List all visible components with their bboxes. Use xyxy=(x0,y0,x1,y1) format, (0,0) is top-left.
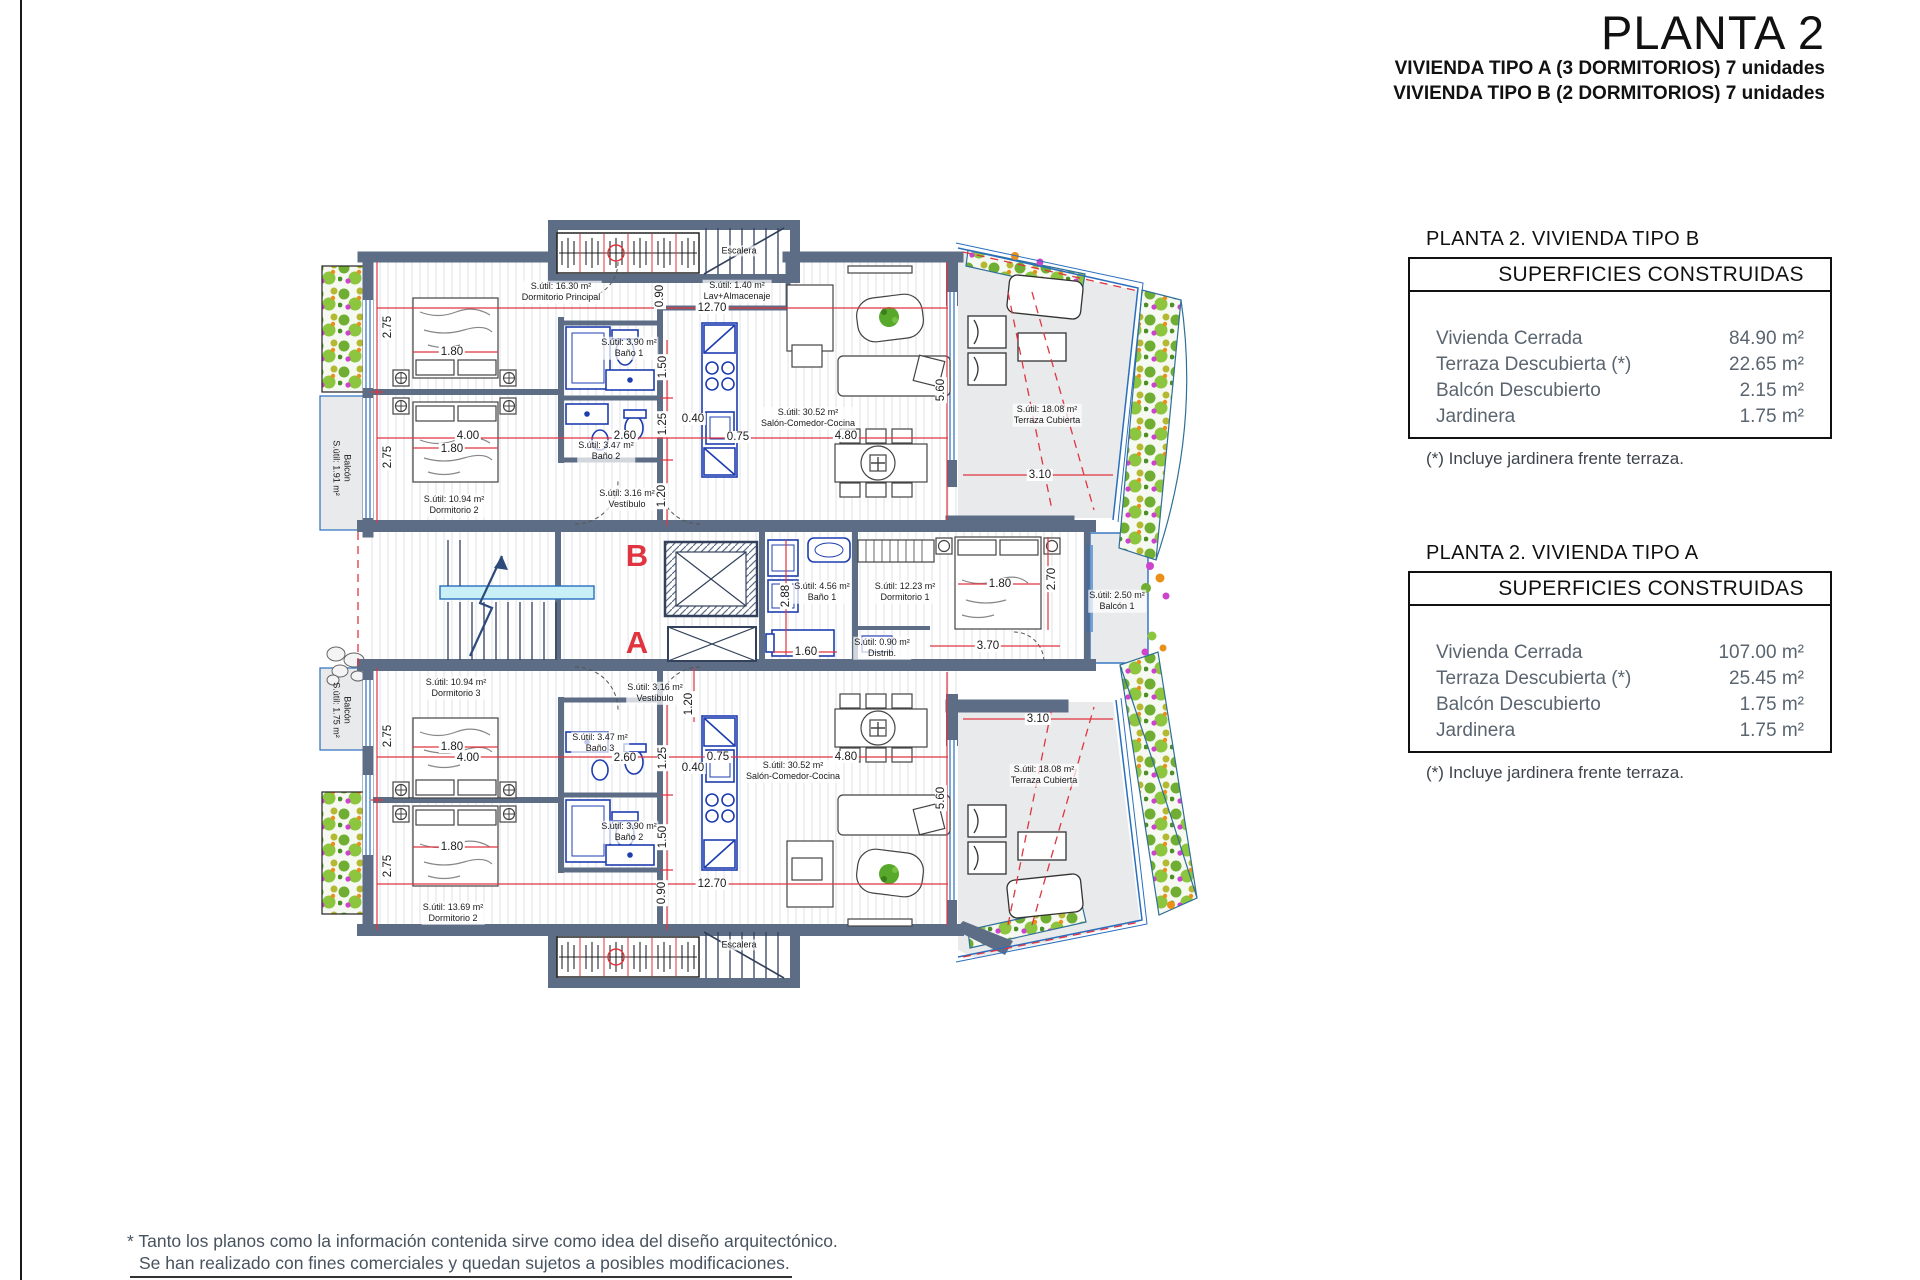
row-value: 25.45 m² xyxy=(1729,666,1804,692)
row-value: 22.65 m² xyxy=(1729,352,1804,378)
row-label: Terraza Descubierta (*) xyxy=(1436,352,1631,378)
sheet-border-left xyxy=(20,0,22,1280)
row-label: Jardinera xyxy=(1436,404,1515,430)
panel-a-heading: PLANTA 2. VIVIENDA TIPO A xyxy=(1426,542,1832,565)
table-row: Balcón Descubierto 2.15 m² xyxy=(1436,378,1804,404)
kitchen-a xyxy=(702,716,737,870)
disclaimer-line1: * Tanto los planos como la información c… xyxy=(127,1230,838,1252)
table-row: Terraza Descubierta (*) 22.65 m² xyxy=(1436,352,1804,378)
panel-a-table: SUPERFICIES CONSTRUIDAS Vivienda Cerrada… xyxy=(1408,571,1832,753)
disclaimer-line2: Se han realizado con fines comerciales y… xyxy=(127,1252,838,1274)
page-title: PLANTA 2 xyxy=(1393,8,1825,57)
row-value: 84.90 m² xyxy=(1729,326,1804,352)
panel-a-table-title: SUPERFICIES CONSTRUIDAS xyxy=(1410,573,1830,606)
row-label: Vivienda Cerrada xyxy=(1436,640,1582,666)
panel-tipo-a: PLANTA 2. VIVIENDA TIPO A SUPERFICIES CO… xyxy=(1408,542,1832,783)
row-value: 1.75 m² xyxy=(1740,718,1804,744)
panel-b-table: SUPERFICIES CONSTRUIDAS Vivienda Cerrada… xyxy=(1408,257,1832,439)
subtitle-tipo-a: VIVIENDA TIPO A (3 DORMITORIOS) 7 unidad… xyxy=(1393,57,1825,82)
table-row: Balcón Descubierto 1.75 m² xyxy=(1436,692,1804,718)
panel-b-heading: PLANTA 2. VIVIENDA TIPO B xyxy=(1426,228,1832,251)
panel-a-footnote: (*) Incluye jardinera frente terraza. xyxy=(1426,763,1832,783)
table-row: Terraza Descubierta (*) 25.45 m² xyxy=(1436,666,1804,692)
elevator xyxy=(665,542,757,661)
table-row: Jardinera 1.75 m² xyxy=(1436,718,1804,744)
row-label: Balcón Descubierto xyxy=(1436,378,1601,404)
kitchen-b xyxy=(702,323,737,477)
row-value: 1.75 m² xyxy=(1740,404,1804,430)
bottom-rule xyxy=(130,1276,792,1278)
row-label: Terraza Descubierta (*) xyxy=(1436,666,1631,692)
panel-tipo-b: PLANTA 2. VIVIENDA TIPO B SUPERFICIES CO… xyxy=(1408,228,1832,469)
row-label: Jardinera xyxy=(1436,718,1515,744)
subtitle-tipo-b: VIVIENDA TIPO B (2 DORMITORIOS) 7 unidad… xyxy=(1393,82,1825,107)
plan-sheet: { "colors":{"wall":"#5e6d86","dim_red":"… xyxy=(0,0,1920,1280)
panel-b-footnote: (*) Incluye jardinera frente terraza. xyxy=(1426,449,1832,469)
row-value: 2.15 m² xyxy=(1740,378,1804,404)
table-row: Vivienda Cerrada 84.90 m² xyxy=(1436,326,1804,352)
title-block: PLANTA 2 VIVIENDA TIPO A (3 DORMITORIOS)… xyxy=(1393,8,1825,107)
table-row: Vivienda Cerrada 107.00 m² xyxy=(1436,640,1804,666)
unit-letter-b: B xyxy=(626,538,648,574)
table-row: Jardinera 1.75 m² xyxy=(1436,404,1804,430)
unit-letter-a: A xyxy=(626,625,648,661)
row-label: Balcón Descubierto xyxy=(1436,692,1601,718)
row-value: 1.75 m² xyxy=(1740,692,1804,718)
panel-b-table-title: SUPERFICIES CONSTRUIDAS xyxy=(1410,259,1830,292)
row-label: Vivienda Cerrada xyxy=(1436,326,1582,352)
row-value: 107.00 m² xyxy=(1718,640,1804,666)
disclaimer: * Tanto los planos como la información c… xyxy=(127,1230,838,1274)
